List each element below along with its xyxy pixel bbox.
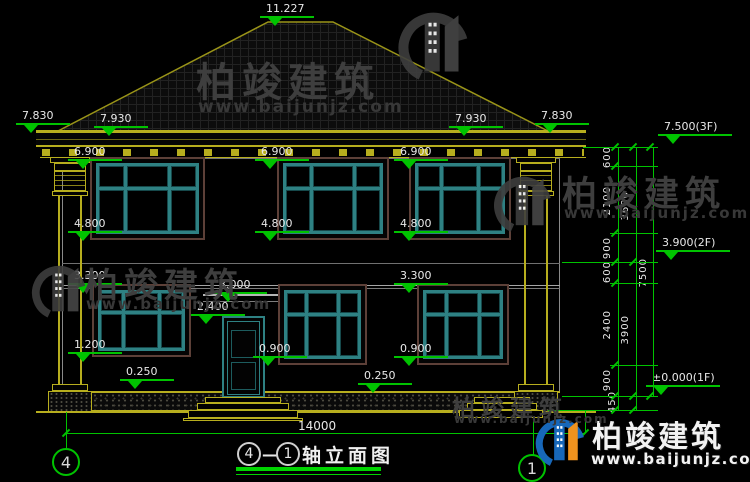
elevation-value: 6.900	[261, 145, 293, 158]
overall-dim-line	[66, 433, 585, 434]
window-pane	[308, 293, 336, 313]
drawing-title: 轴立面图	[302, 441, 394, 468]
elevation-marker: ±0.000(1F)	[652, 372, 715, 384]
window-pane	[481, 293, 500, 313]
title-underline-thin	[236, 474, 381, 475]
elevation-value: 7.930	[100, 112, 132, 125]
elevation-value: 6.900	[400, 145, 432, 158]
title-underline-thick	[236, 467, 381, 471]
door-panel-bottom	[231, 362, 256, 390]
window-pane	[340, 293, 358, 313]
dim-extension-line	[562, 262, 658, 263]
elevation-marker-triangle	[76, 233, 90, 241]
watermark-logo-icon	[492, 166, 558, 243]
elevation-marker: 11.227	[266, 3, 305, 15]
elevation-marker: 4.800	[261, 218, 293, 230]
window-pane	[171, 166, 196, 187]
watermark-url-text: www.baijunjz.com	[454, 412, 609, 426]
elevation-value: 6.900	[74, 145, 106, 158]
elevation-value: 0.250	[364, 369, 396, 382]
window-pane	[418, 166, 440, 187]
window	[283, 163, 383, 234]
window-pane	[481, 316, 500, 356]
elevation-marker-triangle	[664, 252, 678, 260]
window-pane	[99, 166, 124, 187]
elevation-value: 7.830	[22, 109, 54, 122]
dim-text-vertical: 2400	[602, 310, 613, 339]
title-axis-circle-to: 1	[276, 442, 300, 466]
elevation-value: 4.800	[74, 217, 106, 230]
dim-extension-line	[562, 396, 658, 397]
elevation-value: 3.900(2F)	[662, 236, 715, 249]
door-step	[188, 410, 298, 418]
window-pane	[161, 314, 182, 348]
elevation-marker: 3.900(2F)	[662, 237, 715, 249]
elevation-value: 7.930	[455, 112, 487, 125]
watermark-url-text: www.baijunjz.com	[86, 295, 271, 313]
window-pane	[125, 314, 158, 348]
elevation-marker: 0.250	[126, 366, 158, 378]
elevation-value: 1.200	[74, 338, 106, 351]
title-axis-circle-from: 4	[237, 442, 261, 466]
window-pane	[127, 166, 168, 187]
elevation-marker: 7.930	[455, 113, 487, 125]
window-pane	[356, 166, 380, 187]
elevation-marker: 7.830	[22, 110, 54, 122]
dim-node-line	[610, 233, 658, 234]
window-pane	[287, 293, 305, 313]
window-pane	[286, 166, 310, 187]
axis-bubble-left: 4	[52, 448, 80, 476]
elevation-marker: 4.800	[400, 218, 432, 230]
overall-dim-text: 14000	[298, 419, 336, 433]
elevation-marker: 6.900	[261, 146, 293, 158]
pilaster-left-cap-blocks	[54, 171, 86, 191]
dentil-band	[42, 149, 584, 156]
elevation-value: 11.227	[266, 2, 305, 15]
elevation-value: 0.250	[126, 365, 158, 378]
window-pane	[443, 166, 477, 187]
elevation-marker: 7.830	[541, 110, 573, 122]
window-pane	[426, 293, 445, 313]
elevation-marker-triangle	[102, 128, 116, 136]
elevation-marker-triangle	[366, 385, 380, 393]
axis-bubble-left-label: 4	[61, 453, 71, 472]
title-axis-from: 4	[245, 446, 254, 462]
elevation-value: ±0.000(1F)	[652, 371, 715, 384]
elevation-marker-triangle	[402, 161, 416, 169]
elevation-marker-triangle	[402, 285, 416, 293]
door-step	[197, 403, 289, 410]
watermark-logo-icon	[30, 256, 92, 328]
elevation-marker-triangle	[263, 233, 277, 241]
elevation-marker-triangle	[268, 18, 282, 26]
elevation-value: 4.800	[400, 217, 432, 230]
dim-text-vertical: 900	[602, 369, 613, 391]
elevation-marker-triangle	[76, 354, 90, 362]
elevation-marker-triangle	[261, 358, 275, 366]
elevation-marker: 1.200	[74, 339, 106, 351]
elevation-marker-triangle	[76, 161, 90, 169]
elevation-marker: 0.900	[259, 343, 291, 355]
brand-logo-url: www.baijunjz.com	[591, 450, 750, 468]
elevation-marker-triangle	[128, 381, 142, 389]
elevation-value: 7.500(3F)	[664, 120, 717, 133]
elevation-marker: 7.930	[100, 113, 132, 125]
pilaster-left-base	[52, 384, 88, 391]
elevation-marker: 6.900	[400, 146, 432, 158]
elevation-marker-triangle	[543, 125, 557, 133]
elevation-marker-triangle	[402, 358, 416, 366]
window-frame	[90, 157, 205, 240]
door-step	[183, 418, 303, 421]
elevation-value: 0.900	[400, 342, 432, 355]
pilaster-left-plinth	[48, 391, 92, 412]
window-pane	[127, 190, 168, 231]
window-pane	[356, 190, 380, 231]
elevation-marker-triangle	[666, 136, 680, 144]
elevation-value: 0.900	[259, 342, 291, 355]
watermark-url-text: www.baijunjz.com	[564, 204, 749, 222]
window-pane	[313, 190, 352, 231]
window-pane	[171, 190, 196, 231]
window	[423, 290, 503, 359]
elevation-value: 3.300	[400, 269, 432, 282]
watermark-url-text: www.baijunjz.com	[198, 97, 404, 117]
window	[96, 163, 199, 234]
title-axis-to: 1	[284, 446, 293, 462]
dim-extension-line	[583, 147, 658, 148]
cad-elevation-drawing: 14000 4 1 4 — 1 轴立面图 柏竣建筑 www.baijunjz.c…	[0, 0, 750, 482]
elevation-marker-triangle	[457, 128, 471, 136]
elevation-marker: 6.900	[74, 146, 106, 158]
window-pane	[448, 316, 478, 356]
elevation-marker-triangle	[263, 161, 277, 169]
door-panel-top	[231, 330, 256, 358]
window-pane	[448, 293, 478, 313]
window	[284, 290, 361, 359]
elevation-value: 7.830	[541, 109, 573, 122]
window-pane	[340, 316, 358, 356]
dim-text-vertical: 3900	[620, 315, 631, 344]
elevation-marker: 4.800	[74, 218, 106, 230]
window-frame	[277, 157, 389, 240]
elevation-marker: 0.250	[364, 370, 396, 382]
dim-text-vertical: 900	[602, 237, 613, 259]
cornice-molding-line	[36, 139, 586, 140]
elevation-marker: 3.300	[400, 270, 432, 282]
dim-node-line	[610, 283, 658, 284]
axis-line-left	[66, 412, 67, 448]
elevation-marker-triangle	[654, 387, 668, 395]
elevation-marker-triangle	[199, 316, 213, 324]
window-frame	[278, 284, 367, 365]
watermark-logo-icon	[396, 0, 476, 92]
elevation-marker-triangle	[402, 233, 416, 241]
elevation-marker: 0.900	[400, 343, 432, 355]
elevation-value: 4.800	[261, 217, 293, 230]
elevation-marker-triangle	[24, 125, 38, 133]
window-pane	[313, 166, 352, 187]
elevation-marker: 7.500(3F)	[664, 121, 717, 133]
window-pane	[443, 190, 477, 231]
dim-node-line	[610, 365, 658, 366]
window-pane	[308, 316, 336, 356]
